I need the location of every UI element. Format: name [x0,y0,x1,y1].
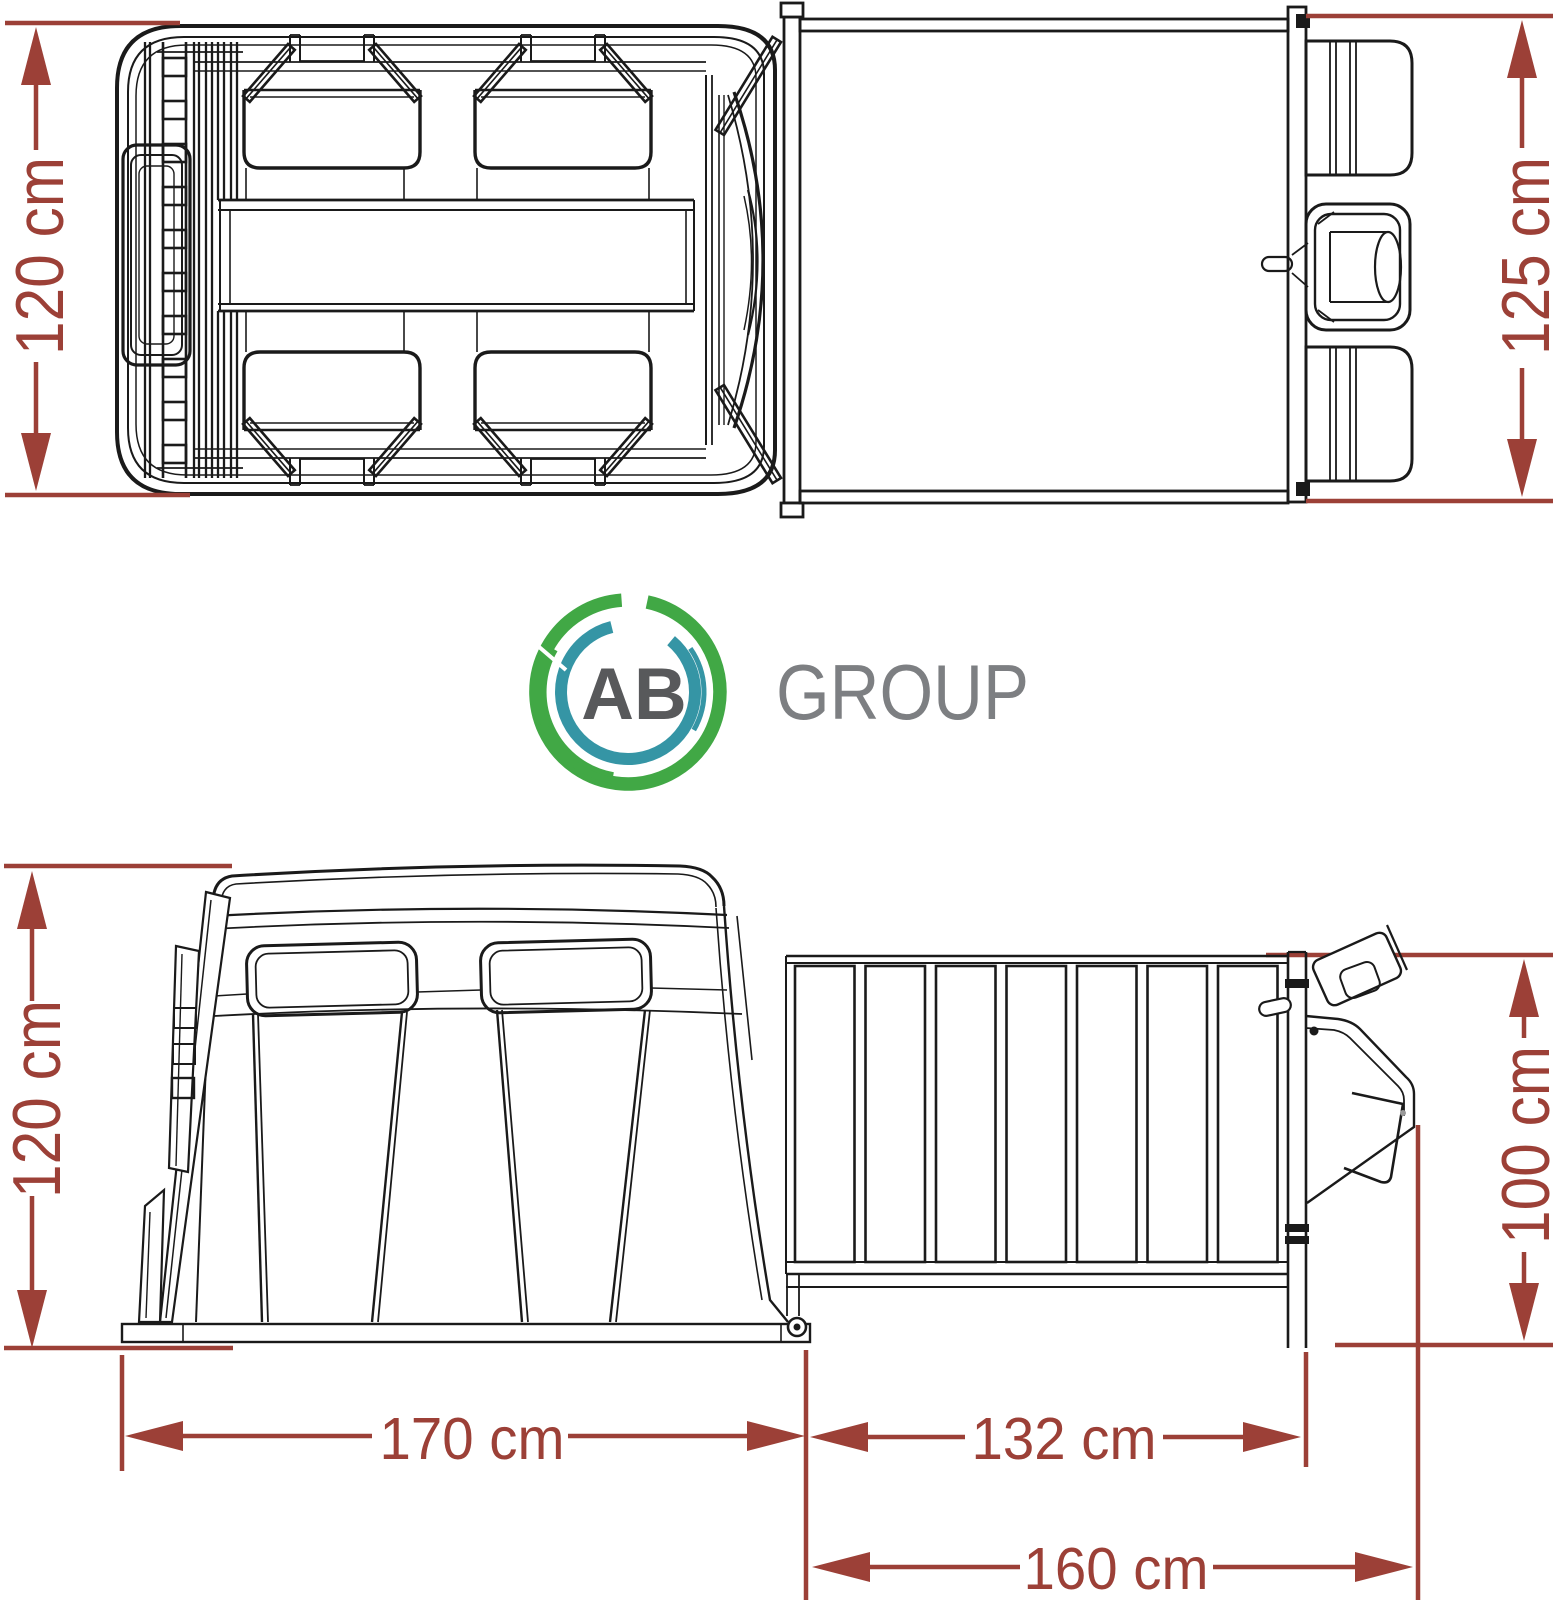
svg-text:160 cm: 160 cm [1024,1536,1209,1600]
svg-text:120 cm: 120 cm [0,1000,75,1198]
svg-text:170 cm: 170 cm [380,1406,565,1472]
svg-text:GROUP: GROUP [776,648,1029,736]
svg-text:125 cm: 125 cm [1488,157,1555,355]
svg-text:AB: AB [581,654,686,735]
svg-text:100 cm: 100 cm [1488,1046,1555,1244]
svg-text:120 cm: 120 cm [2,157,78,355]
svg-text:132 cm: 132 cm [972,1406,1157,1472]
